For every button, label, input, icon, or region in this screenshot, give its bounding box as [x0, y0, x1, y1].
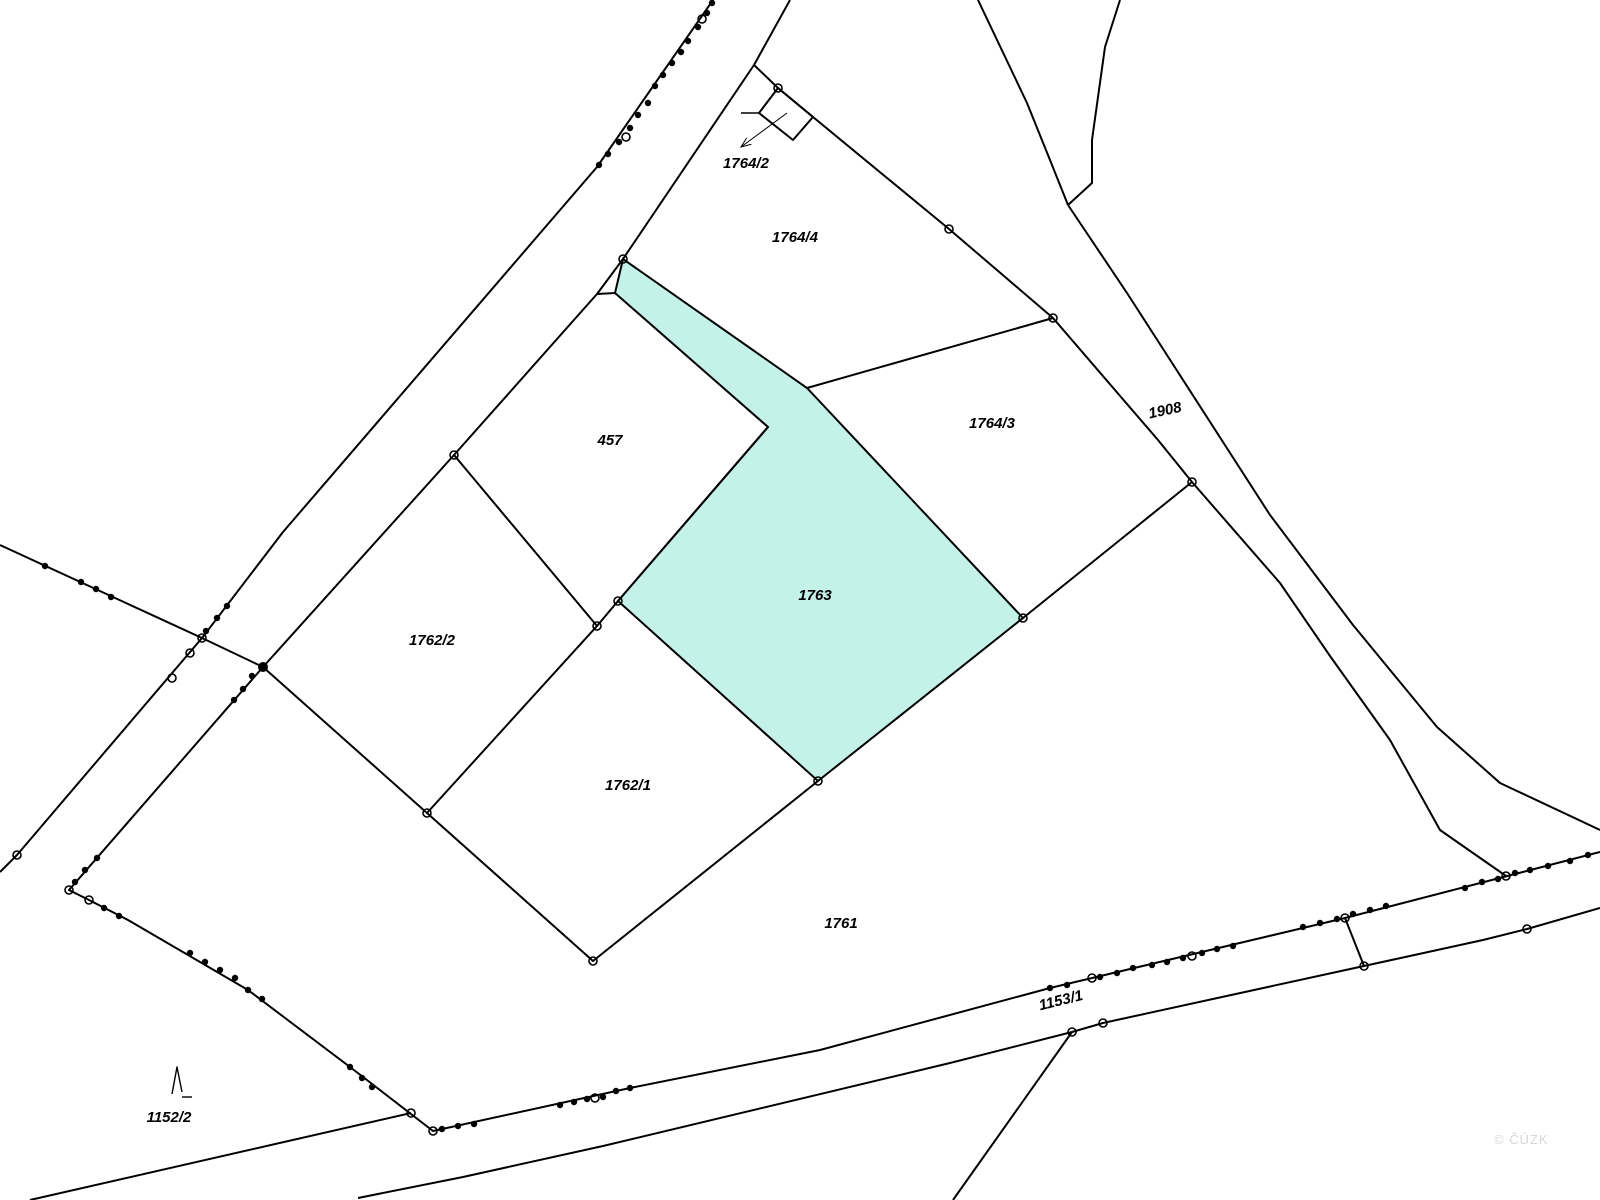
vertex-marker: [622, 133, 630, 141]
survey-point: [669, 60, 675, 66]
survey-point: [695, 24, 701, 30]
survey-point: [1130, 965, 1136, 971]
road-1153-connector: [1345, 918, 1364, 966]
survey-point: [1317, 920, 1323, 926]
survey-point: [678, 49, 684, 55]
bottom-left-boundary: [30, 1113, 411, 1200]
survey-point: [214, 615, 220, 621]
highlight-parcel-1763[interactable]: [615, 259, 1023, 781]
left-diagonal-boundary: [0, 545, 263, 667]
survey-point: [613, 1088, 619, 1094]
survey-point: [108, 594, 114, 600]
parcel-label-1764/3[interactable]: 1764/3: [969, 415, 1016, 432]
survey-point: [116, 913, 122, 919]
survey-point: [704, 10, 710, 16]
survey-point: [78, 579, 84, 585]
survey-point: [232, 975, 238, 981]
survey-point: [1114, 970, 1120, 976]
survey-point: [94, 855, 100, 861]
survey-point: [709, 0, 715, 6]
survey-point: [1383, 903, 1389, 909]
parcel-label-1762/2[interactable]: 1762/2: [409, 632, 456, 649]
survey-point: [1230, 943, 1236, 949]
survey-point: [557, 1102, 563, 1108]
cadastral-map-canvas[interactable]: 1764/21764/41764/3190845717631762/21762/…: [0, 0, 1600, 1200]
parcel-label-1761[interactable]: 1761: [824, 915, 857, 932]
survey-point: [1462, 885, 1468, 891]
parcel-1764-3-se-edge: [1023, 482, 1192, 618]
top-wedge-left-line: [978, 0, 1068, 205]
top-wedge-right-line: [1068, 0, 1120, 205]
survey-point: [652, 83, 658, 89]
survey-point: [187, 950, 193, 956]
parcel-457-north-notch: [597, 293, 615, 294]
survey-point: [600, 1094, 606, 1100]
survey-point: [660, 72, 666, 78]
survey-point: [1367, 907, 1373, 913]
parcel-1762-2-se-edge: [427, 626, 597, 813]
survey-point: [635, 112, 641, 118]
survey-point: [240, 686, 246, 692]
survey-point: [72, 879, 78, 885]
survey-point: [359, 1075, 365, 1081]
vertex-marker: [1188, 952, 1196, 960]
junction-point: [258, 662, 268, 672]
road-1153-south-boundary: [358, 908, 1600, 1198]
parcel-1764-4-se-edge: [807, 318, 1053, 388]
survey-point: [1180, 955, 1186, 961]
survey-point: [249, 673, 255, 679]
survey-point: [645, 100, 651, 106]
survey-point: [1064, 982, 1070, 988]
survey-point: [203, 628, 209, 634]
survey-point: [347, 1064, 353, 1070]
parcel-label-1153/1[interactable]: 1153/1: [1037, 987, 1085, 1014]
survey-point: [93, 586, 99, 592]
survey-point: [1097, 974, 1103, 980]
survey-point: [1527, 867, 1533, 873]
parcel-label-1763[interactable]: 1763: [798, 587, 832, 604]
cuzk-watermark: © ČÚZK: [1494, 1132, 1549, 1147]
survey-point: [1214, 946, 1220, 952]
survey-point: [627, 125, 633, 131]
survey-point: [471, 1121, 477, 1127]
parcel-label-1908[interactable]: 1908: [1147, 399, 1184, 423]
survey-point: [455, 1123, 461, 1129]
survey-point: [202, 959, 208, 965]
survey-point: [439, 1126, 445, 1132]
survey-point: [1545, 863, 1551, 869]
survey-point: [1149, 962, 1155, 968]
survey-point: [627, 1085, 633, 1091]
survey-point: [596, 162, 602, 168]
survey-point: [1512, 870, 1518, 876]
survey-point: [224, 603, 230, 609]
tree-symbol-spike: [172, 1067, 182, 1094]
survey-point: [605, 151, 611, 157]
survey-point: [685, 38, 691, 44]
survey-point: [217, 967, 223, 973]
survey-point: [1495, 876, 1501, 882]
block-1764-nw-boundary: [754, 65, 949, 229]
parcel-label-1764/4[interactable]: 1764/4: [772, 229, 819, 246]
survey-point: [571, 1099, 577, 1105]
survey-point: [1164, 959, 1170, 965]
survey-point: [259, 996, 265, 1002]
survey-point: [1334, 916, 1340, 922]
parcel-label-1764/2[interactable]: 1764/2: [723, 155, 770, 172]
survey-point: [1047, 985, 1053, 991]
survey-point: [1479, 879, 1485, 885]
survey-point: [245, 987, 251, 993]
survey-point: [1300, 924, 1306, 930]
parcel-label-1152/2[interactable]: 1152/2: [147, 1109, 192, 1126]
survey-point: [231, 697, 237, 703]
parcel-label-1762/1[interactable]: 1762/1: [605, 777, 651, 794]
survey-point: [1199, 950, 1205, 956]
survey-point: [1585, 852, 1591, 858]
survey-point: [1350, 911, 1356, 917]
survey-point: [82, 867, 88, 873]
survey-point: [584, 1096, 590, 1102]
parcel-label-457[interactable]: 457: [596, 432, 623, 449]
survey-point: [42, 563, 48, 569]
cadastral-map-viewport: 1764/21764/41764/3190845717631762/21762/…: [0, 0, 1600, 1200]
survey-point: [369, 1084, 375, 1090]
parcel-1762-sw-chain: [263, 667, 818, 961]
road-1908-sw-boundary: [949, 229, 1506, 876]
survey-point: [101, 905, 107, 911]
survey-point: [616, 139, 622, 145]
survey-point: [1567, 858, 1573, 864]
